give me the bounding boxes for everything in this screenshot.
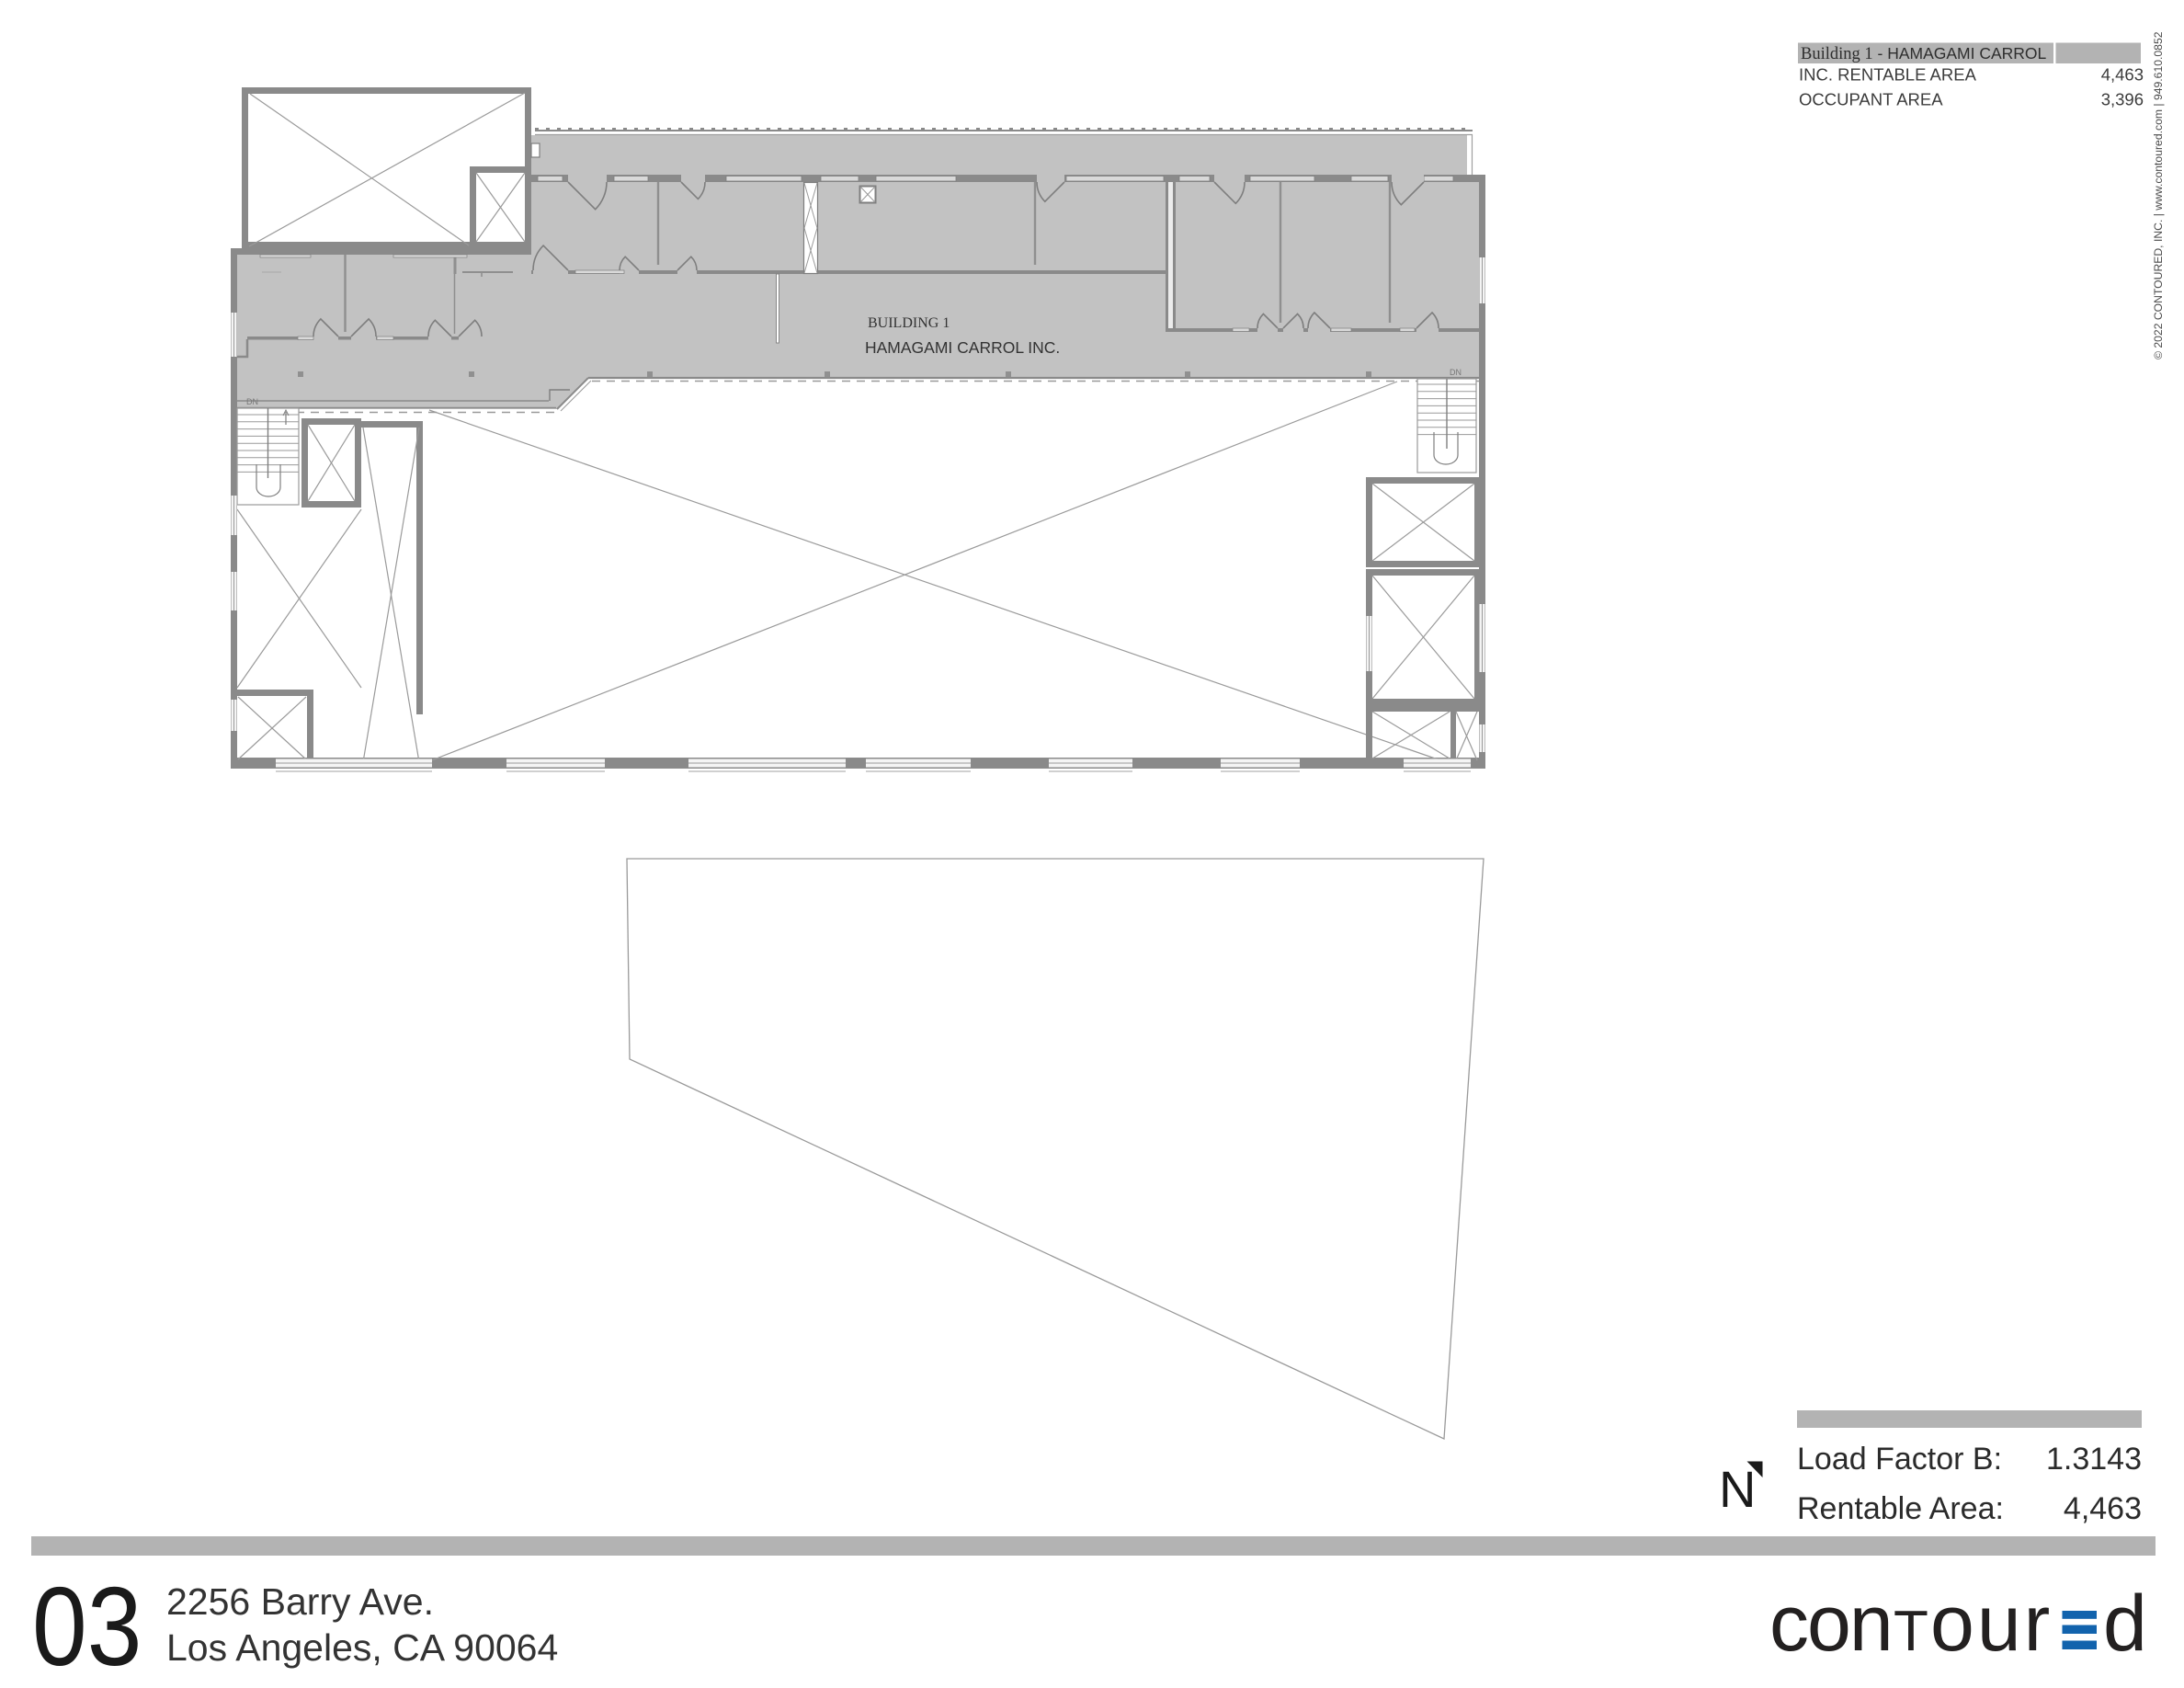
svg-text:03: 03 [32, 1565, 142, 1688]
svg-text:3,396: 3,396 [2101, 90, 2144, 109]
svg-text:con: con [1769, 1580, 1892, 1668]
svg-text:Los Angeles, CA 90064: Los Angeles, CA 90064 [166, 1626, 558, 1669]
svg-text:N: N [1719, 1460, 1756, 1518]
svg-text:Building 1 - HAMAGAMI CARROL: Building 1 - HAMAGAMI CARROL [1801, 44, 2047, 63]
svg-text:INC. RENTABLE AREA: INC. RENTABLE AREA [1799, 65, 1977, 85]
svg-text:our: our [1930, 1580, 2053, 1668]
svg-text:4,463: 4,463 [2101, 65, 2144, 85]
svg-text:T: T [1894, 1600, 1928, 1663]
svg-text:1.3143: 1.3143 [2046, 1442, 2142, 1477]
svg-text:OCCUPANT AREA: OCCUPANT AREA [1799, 90, 1943, 109]
svg-text:DN: DN [246, 397, 258, 406]
svg-text:2256 Barry Ave.: 2256 Barry Ave. [166, 1580, 434, 1623]
svg-text:DN: DN [1450, 368, 1462, 377]
svg-text:4,463: 4,463 [2064, 1491, 2142, 1526]
svg-text:HAMAGAMI CARROL INC.: HAMAGAMI CARROL INC. [865, 338, 1060, 357]
svg-text:BUILDING 1: BUILDING 1 [868, 315, 950, 331]
svg-text:d: d [2103, 1580, 2147, 1668]
svg-text:Load Factor B:: Load Factor B: [1797, 1442, 2002, 1477]
svg-text:© 2022 CONTOURED, INC. | www.c: © 2022 CONTOURED, INC. | www.contoured.c… [2152, 31, 2165, 359]
svg-text:Rentable Area:: Rentable Area: [1797, 1491, 2004, 1526]
